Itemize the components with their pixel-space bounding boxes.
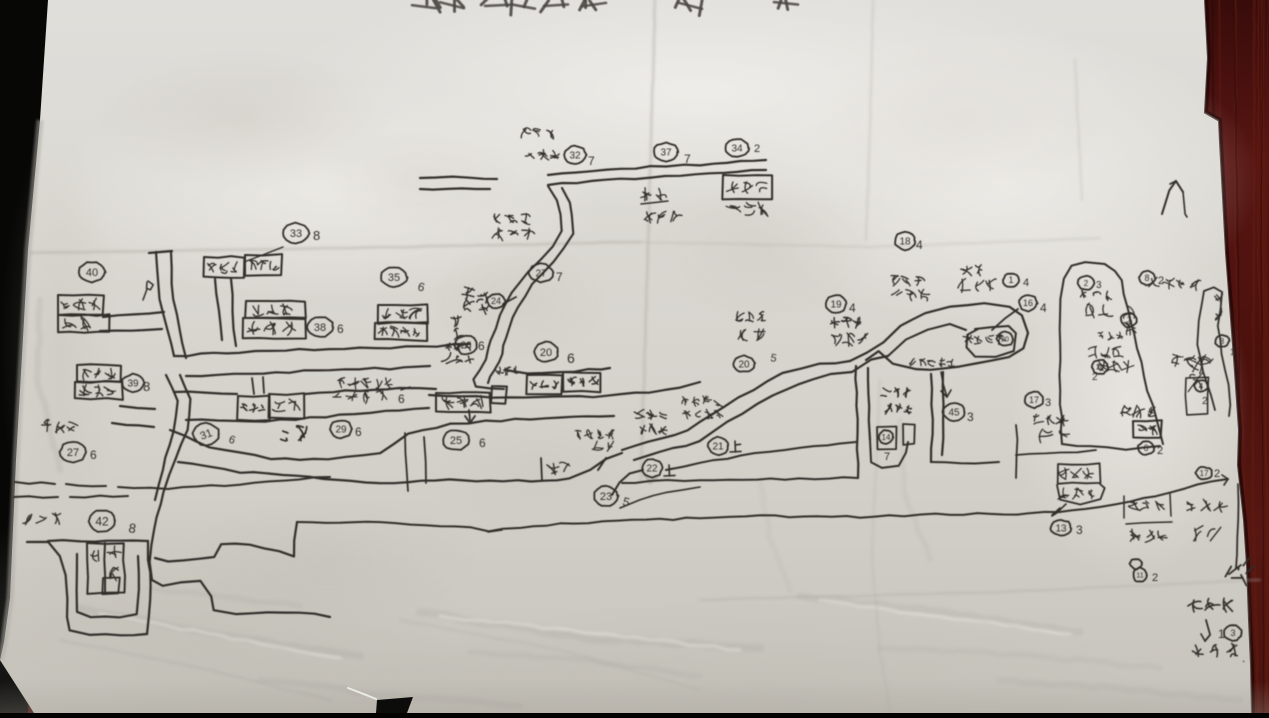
svg-text:17: 17 bbox=[1029, 395, 1039, 405]
svg-text:4: 4 bbox=[916, 238, 923, 252]
svg-text:7: 7 bbox=[884, 451, 890, 463]
svg-text:25: 25 bbox=[450, 435, 462, 447]
svg-text:6: 6 bbox=[1143, 443, 1148, 453]
svg-text:8: 8 bbox=[313, 228, 320, 243]
svg-text:20: 20 bbox=[540, 347, 552, 359]
svg-text:35: 35 bbox=[388, 272, 400, 284]
svg-text:33: 33 bbox=[290, 228, 302, 240]
svg-text:6: 6 bbox=[567, 350, 575, 366]
svg-text:14: 14 bbox=[882, 433, 891, 442]
svg-text:42: 42 bbox=[95, 514, 109, 528]
svg-text:45: 45 bbox=[948, 408, 960, 419]
svg-text:.: . bbox=[1242, 651, 1245, 665]
svg-text:27: 27 bbox=[535, 269, 547, 280]
svg-text:21: 21 bbox=[712, 442, 724, 453]
svg-text:22: 22 bbox=[646, 464, 658, 475]
svg-text:1: 1 bbox=[1008, 275, 1013, 285]
svg-text:2: 2 bbox=[1202, 396, 1208, 407]
svg-text:13: 13 bbox=[1055, 524, 1067, 535]
svg-text:11: 11 bbox=[1136, 573, 1143, 580]
svg-text:3: 3 bbox=[1045, 397, 1051, 409]
svg-text:1: 1 bbox=[1230, 347, 1235, 357]
svg-text:6: 6 bbox=[398, 392, 405, 406]
svg-text:37: 37 bbox=[660, 148, 672, 159]
svg-text:3: 3 bbox=[1230, 628, 1235, 638]
svg-text:38: 38 bbox=[314, 322, 326, 334]
svg-text:23: 23 bbox=[600, 491, 612, 503]
svg-text:2: 2 bbox=[1152, 572, 1158, 584]
svg-text:6: 6 bbox=[90, 448, 97, 462]
svg-text:2: 2 bbox=[1084, 279, 1089, 288]
svg-text:6: 6 bbox=[337, 322, 344, 336]
svg-text:3: 3 bbox=[1076, 523, 1083, 537]
svg-text:3: 3 bbox=[1220, 337, 1225, 346]
svg-text:6: 6 bbox=[355, 425, 362, 439]
svg-text:2: 2 bbox=[1157, 445, 1163, 457]
svg-text:2: 2 bbox=[1092, 372, 1098, 383]
svg-text:27: 27 bbox=[67, 447, 79, 459]
svg-text:18: 18 bbox=[899, 237, 911, 248]
svg-text:40: 40 bbox=[86, 267, 98, 279]
svg-text:3: 3 bbox=[967, 410, 974, 424]
svg-text:8: 8 bbox=[143, 379, 150, 394]
svg-text:8: 8 bbox=[1144, 273, 1149, 283]
svg-text:6: 6 bbox=[478, 339, 485, 353]
svg-text:4: 4 bbox=[1040, 301, 1047, 315]
svg-text:7: 7 bbox=[588, 154, 595, 168]
svg-text:7: 7 bbox=[684, 152, 691, 166]
svg-text:24: 24 bbox=[491, 296, 501, 306]
svg-text:16: 16 bbox=[1023, 298, 1033, 308]
svg-text:39: 39 bbox=[127, 379, 139, 390]
svg-text:4: 4 bbox=[849, 301, 856, 315]
svg-text:29: 29 bbox=[335, 425, 347, 436]
svg-text:32: 32 bbox=[569, 151, 581, 162]
svg-text:6: 6 bbox=[479, 436, 486, 450]
svg-text:3: 3 bbox=[1096, 280, 1102, 291]
svg-text:19: 19 bbox=[830, 300, 842, 311]
svg-text:2: 2 bbox=[1214, 468, 1220, 480]
svg-text:34: 34 bbox=[731, 144, 743, 155]
svg-text:20: 20 bbox=[738, 360, 750, 371]
svg-text:17: 17 bbox=[1200, 469, 1209, 478]
svg-text:4: 4 bbox=[1023, 277, 1029, 289]
svg-text:2: 2 bbox=[1158, 275, 1164, 287]
svg-text:7: 7 bbox=[556, 270, 563, 284]
svg-text:2: 2 bbox=[754, 143, 760, 155]
